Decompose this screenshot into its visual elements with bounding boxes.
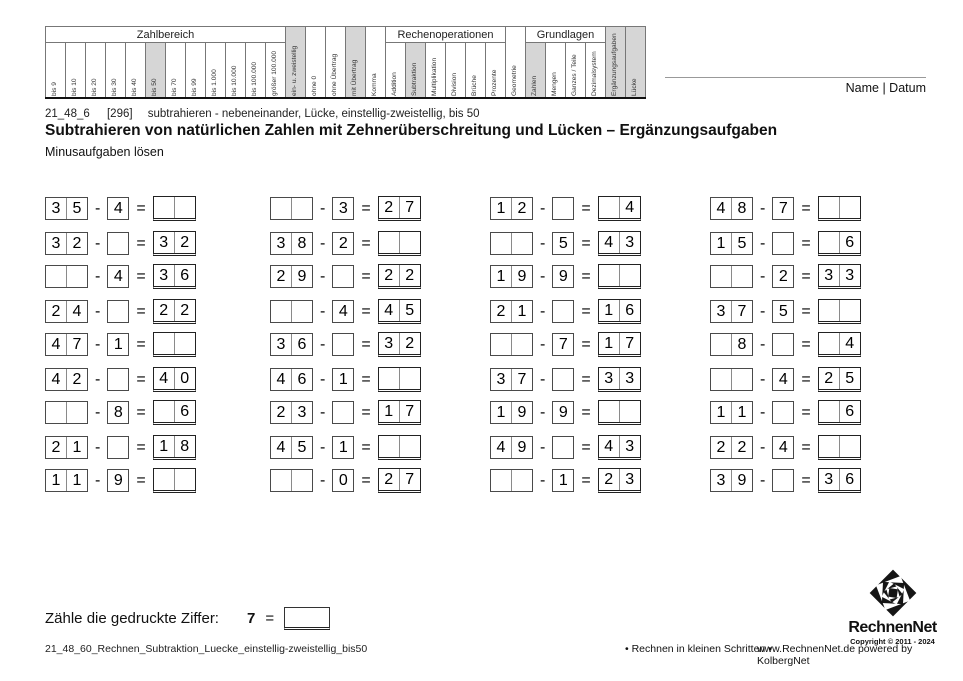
- topic-column-label: Prozente: [492, 43, 499, 97]
- topic-column: bis 30: [106, 43, 126, 99]
- equals-sign: =: [136, 200, 145, 218]
- problem-minuend-box: [45, 401, 88, 424]
- digit-cell: 4: [271, 437, 291, 458]
- problem-minuend-box: 38: [270, 232, 313, 255]
- empty-digit-cell: [291, 301, 312, 322]
- digit-cell: 2: [773, 266, 793, 287]
- problem-minuend-box: 24: [45, 300, 88, 323]
- digit-cell: 9: [511, 266, 532, 287]
- digit-cell: 7: [399, 197, 420, 218]
- problem-minuend-box: 15: [710, 232, 753, 255]
- subtraction-problem: 49-=43: [490, 435, 710, 460]
- equals-sign: =: [581, 371, 590, 389]
- problems-grid: 35-4=-3=2712-=448-7=32-=3238-2=-5=4315-=…: [45, 196, 935, 501]
- empty-digit-cell: [731, 369, 752, 390]
- digit-cell: 0: [333, 470, 353, 491]
- count-digit-value: 7: [247, 610, 255, 627]
- digit-cell: 9: [511, 402, 532, 423]
- problem-minuend-box: [710, 368, 753, 391]
- digit-cell: 4: [271, 369, 291, 390]
- problem-minuend-box: 37: [710, 300, 753, 323]
- digit-cell: 4: [108, 198, 128, 219]
- problem-minuend-box: [270, 300, 313, 323]
- digit-cell: 7: [66, 334, 87, 355]
- problem-row: 24-=22-4=4521-=1637-5=: [45, 299, 935, 324]
- topic-column: bis 1.000: [206, 43, 226, 99]
- problem-result-box: 45: [378, 299, 421, 324]
- empty-digit-cell: [511, 470, 532, 491]
- minus-sign: -: [95, 268, 100, 286]
- empty-digit-cell: [379, 436, 399, 457]
- problem-minuend-box: 32: [45, 232, 88, 255]
- digit-cell: 4: [333, 301, 353, 322]
- subtraction-problem: 11-=6: [710, 400, 861, 425]
- empty-digit-cell: [773, 334, 793, 355]
- problem-result-box: 36: [153, 264, 196, 289]
- digit-cell: 6: [839, 401, 860, 422]
- problem-result-box: 43: [598, 435, 641, 460]
- problem-subtrahend-box: 5: [552, 232, 574, 255]
- digit-cell: 3: [46, 198, 66, 219]
- problem-result-box: 33: [818, 264, 861, 289]
- problem-result-box: 32: [153, 231, 196, 256]
- count-digit-answer-box: [284, 607, 330, 630]
- digit-cell: 4: [711, 198, 731, 219]
- digit-cell: 4: [619, 197, 640, 218]
- topic-column-label: ein- u. zweistellig: [292, 27, 299, 97]
- digit-cell: 1: [553, 470, 573, 491]
- empty-digit-cell: [619, 265, 640, 286]
- equals-sign: =: [136, 404, 145, 422]
- problem-result-box: 18: [153, 435, 196, 460]
- problem-result-box: [153, 468, 196, 493]
- problem-minuend-box: 35: [45, 197, 88, 220]
- empty-digit-cell: [619, 401, 640, 422]
- problem-subtrahend-box: [772, 232, 794, 255]
- problem-minuend-box: [270, 469, 313, 492]
- topic-column: Lücke: [626, 27, 646, 99]
- empty-digit-cell: [839, 197, 860, 218]
- topic-group-header: Grundlagen: [526, 27, 606, 43]
- problem-result-box: 6: [153, 400, 196, 425]
- problem-subtrahend-box: [107, 300, 129, 323]
- digit-cell: 5: [839, 368, 860, 389]
- equals-sign: =: [581, 472, 590, 490]
- topic-column-label: mit Übertrag: [352, 27, 359, 97]
- subtraction-problem: 24-=22: [45, 299, 270, 324]
- topic-column-label: bis 10.000: [232, 43, 239, 97]
- digit-cell: 2: [46, 301, 66, 322]
- subtraction-problem: 23-=17: [270, 400, 490, 425]
- empty-digit-cell: [108, 233, 128, 254]
- empty-digit-cell: [333, 334, 353, 355]
- empty-digit-cell: [154, 469, 174, 490]
- empty-digit-cell: [553, 369, 573, 390]
- empty-digit-cell: [399, 436, 420, 457]
- digit-cell: 5: [553, 233, 573, 254]
- empty-digit-cell: [291, 198, 312, 219]
- count-digit-task: Zähle die gedruckte Ziffer: 7 =: [45, 607, 330, 630]
- equals-sign: =: [801, 235, 810, 253]
- empty-digit-cell: [711, 266, 731, 287]
- digit-cell: 3: [154, 232, 174, 253]
- topic-column-label: Dezimalsystem: [592, 43, 599, 97]
- empty-digit-cell: [333, 266, 353, 287]
- digit-cell: 8: [291, 233, 312, 254]
- topic-column: Geometrie: [506, 27, 526, 99]
- digit-cell: 3: [619, 469, 640, 490]
- subtraction-problem: 29-=22: [270, 264, 490, 289]
- empty-digit-cell: [291, 470, 312, 491]
- empty-digit-cell: [399, 232, 420, 253]
- topic-column: ohne Übertrag: [326, 27, 346, 99]
- subtraction-problem: 19-9=: [490, 400, 710, 425]
- empty-digit-cell: [711, 369, 731, 390]
- subtraction-problem: 46-1=: [270, 367, 490, 392]
- equals-sign: =: [581, 404, 590, 422]
- digit-cell: 3: [711, 470, 731, 491]
- digit-cell: 3: [291, 402, 312, 423]
- equals-sign: =: [361, 439, 370, 457]
- minus-sign: -: [95, 303, 100, 321]
- digit-cell: 3: [619, 368, 640, 389]
- digit-cell: 8: [174, 436, 195, 457]
- logo-copyright: Copyright © 2011 - 2024: [845, 638, 940, 646]
- digit-cell: 2: [379, 197, 399, 218]
- problem-result-box: 40: [153, 367, 196, 392]
- digit-cell: 4: [839, 333, 860, 354]
- problem-row: -4=3629-=2219-9=-2=33: [45, 264, 935, 289]
- topic-column: bis 100.000: [246, 43, 266, 99]
- empty-digit-cell: [271, 301, 291, 322]
- empty-digit-cell: [819, 197, 839, 218]
- digit-cell: 3: [839, 265, 860, 286]
- digit-cell: 1: [491, 266, 511, 287]
- problem-result-box: 25: [818, 367, 861, 392]
- topic-column-label: bis 1.000: [212, 43, 219, 97]
- empty-digit-cell: [174, 333, 195, 354]
- topic-column-label: bis 100.000: [252, 43, 259, 97]
- problem-row: 42-=4046-1=37-=33-4=25: [45, 367, 935, 392]
- problem-subtrahend-box: 9: [552, 265, 574, 288]
- minus-sign: -: [95, 371, 100, 389]
- topic-column-label: Komma: [372, 27, 379, 97]
- problem-subtrahend-box: [107, 232, 129, 255]
- equals-sign: =: [361, 303, 370, 321]
- digit-cell: 2: [66, 369, 87, 390]
- equals-sign: =: [801, 472, 810, 490]
- digit-cell: 3: [271, 334, 291, 355]
- problem-subtrahend-box: [552, 368, 574, 391]
- problem-subtrahend-box: 4: [107, 197, 129, 220]
- empty-digit-cell: [773, 470, 793, 491]
- digit-cell: 1: [599, 300, 619, 321]
- page-title: Subtrahieren von natürlichen Zahlen mit …: [45, 122, 777, 140]
- digit-cell: 2: [711, 437, 731, 458]
- subtraction-problem: 36-=32: [270, 332, 490, 357]
- problem-result-box: 6: [818, 231, 861, 256]
- subtraction-problem: 11-9=: [45, 468, 270, 493]
- subtraction-problem: -1=23: [490, 468, 710, 493]
- problem-subtrahend-box: [552, 300, 574, 323]
- topic-column-label: Multiplikation: [432, 43, 439, 97]
- digit-cell: 5: [66, 198, 87, 219]
- digit-cell: 1: [599, 333, 619, 354]
- subtraction-problem: 48-7=: [710, 196, 861, 221]
- empty-digit-cell: [773, 402, 793, 423]
- empty-digit-cell: [553, 198, 573, 219]
- equals-sign: =: [361, 200, 370, 218]
- topic-column: bis 99: [186, 43, 206, 99]
- problem-result-box: [378, 435, 421, 460]
- problem-result-box: 16: [598, 299, 641, 324]
- problem-result-box: [818, 196, 861, 221]
- digit-cell: 4: [66, 301, 87, 322]
- problem-row: 35-4=-3=2712-=448-7=: [45, 196, 935, 221]
- digit-cell: 1: [379, 401, 399, 422]
- digit-cell: 3: [711, 301, 731, 322]
- digit-cell: 4: [154, 368, 174, 389]
- topic-column: bis 10: [66, 43, 86, 99]
- topic-column-label: Ergänzungsaufgaben: [612, 27, 619, 97]
- problem-result-box: 17: [598, 332, 641, 357]
- digit-cell: 2: [379, 469, 399, 490]
- topic-column: bis 10.000: [226, 43, 246, 99]
- equals-sign: =: [361, 404, 370, 422]
- minus-sign: -: [95, 200, 100, 218]
- problem-result-box: [378, 367, 421, 392]
- topic-column: Multiplikation: [426, 43, 446, 99]
- minus-sign: -: [95, 472, 100, 490]
- digit-cell: 6: [174, 401, 195, 422]
- topic-column: ein- u. zweistellig: [286, 27, 306, 99]
- digit-cell: 9: [511, 437, 532, 458]
- digit-cell: 2: [333, 233, 353, 254]
- digit-cell: 6: [174, 265, 195, 286]
- topic-column-label: bis 10: [72, 43, 79, 97]
- problem-minuend-box: 49: [490, 436, 533, 459]
- subtraction-problem: -7=17: [490, 332, 710, 357]
- empty-digit-cell: [108, 369, 128, 390]
- equals-sign: =: [581, 235, 590, 253]
- minus-sign: -: [540, 303, 545, 321]
- digit-cell: 6: [291, 334, 312, 355]
- problem-subtrahend-box: 3: [332, 197, 354, 220]
- problem-minuend-box: 46: [270, 368, 313, 391]
- equals-sign: =: [801, 200, 810, 218]
- footer-filename: 21_48_60_Rechnen_Subtraktion_Luecke_eins…: [45, 643, 367, 655]
- equals-sign: =: [361, 336, 370, 354]
- digit-cell: 5: [291, 437, 312, 458]
- problem-subtrahend-box: [332, 265, 354, 288]
- problem-result-box: 6: [818, 400, 861, 425]
- equals-sign: =: [361, 235, 370, 253]
- topic-column-label: bis 30: [112, 43, 119, 97]
- digit-cell: 9: [553, 402, 573, 423]
- problem-subtrahend-box: 0: [332, 469, 354, 492]
- empty-digit-cell: [333, 402, 353, 423]
- minus-sign: -: [540, 439, 545, 457]
- minus-sign: -: [760, 371, 765, 389]
- digit-cell: 2: [511, 198, 532, 219]
- digit-cell: 3: [599, 368, 619, 389]
- empty-digit-cell: [271, 470, 291, 491]
- digit-cell: 2: [819, 368, 839, 389]
- empty-digit-cell: [491, 470, 511, 491]
- minus-sign: -: [760, 268, 765, 286]
- problem-minuend-box: 29: [270, 265, 313, 288]
- digit-cell: 2: [271, 402, 291, 423]
- problem-minuend-box: 37: [490, 368, 533, 391]
- minus-sign: -: [760, 439, 765, 457]
- problem-minuend-box: [710, 265, 753, 288]
- digit-cell: 1: [731, 402, 752, 423]
- digit-cell: 8: [731, 198, 752, 219]
- minus-sign: -: [540, 268, 545, 286]
- problem-result-box: [153, 332, 196, 357]
- equals-sign: =: [581, 200, 590, 218]
- problem-subtrahend-box: [772, 333, 794, 356]
- problem-result-box: 27: [378, 196, 421, 221]
- subtraction-problem: -5=43: [490, 231, 710, 256]
- problem-result-box: 32: [378, 332, 421, 357]
- digit-cell: 3: [46, 233, 66, 254]
- empty-digit-cell: [731, 266, 752, 287]
- problem-row: 21-=1845-1=49-=4322-4=: [45, 435, 935, 460]
- worksheet-description: subtrahieren - nebeneinander, Lücke, ein…: [148, 108, 480, 120]
- empty-digit-cell: [599, 401, 619, 422]
- problem-subtrahend-box: 4: [772, 368, 794, 391]
- topic-matrix-table: Zahlbereichein- u. zweistelligohne 0ohne…: [45, 26, 646, 99]
- equals-sign: =: [136, 439, 145, 457]
- digit-cell: 9: [553, 266, 573, 287]
- topic-column: Subtraktion: [406, 43, 426, 99]
- empty-digit-cell: [174, 197, 195, 218]
- empty-digit-cell: [46, 402, 66, 423]
- problem-result-box: 27: [378, 468, 421, 493]
- equals-sign: =: [581, 439, 590, 457]
- subtraction-problem: 45-1=: [270, 435, 490, 460]
- digit-cell: 1: [46, 470, 66, 491]
- problem-minuend-box: 12: [490, 197, 533, 220]
- digit-cell: 6: [291, 369, 312, 390]
- digit-cell: 2: [271, 266, 291, 287]
- digit-cell: 6: [619, 300, 640, 321]
- digit-cell: 2: [46, 437, 66, 458]
- subtraction-problem: 22-4=: [710, 435, 861, 460]
- empty-digit-cell: [108, 301, 128, 322]
- footer-slogan: • Rechnen in kleinen Schritten •: [625, 643, 772, 655]
- minus-sign: -: [760, 303, 765, 321]
- empty-digit-cell: [553, 301, 573, 322]
- digit-cell: 4: [599, 436, 619, 457]
- topic-column: Addition: [386, 43, 406, 99]
- problem-minuend-box: 11: [45, 469, 88, 492]
- topic-column: Zahlen: [526, 43, 546, 99]
- problem-result-box: [598, 264, 641, 289]
- digit-cell: 2: [66, 233, 87, 254]
- subtraction-problem: 8-=4: [710, 332, 861, 357]
- topic-column-label: größer 100.000: [272, 43, 279, 97]
- worksheet-page: Zahlbereichein- u. zweistelligohne 0ohne…: [0, 0, 963, 681]
- empty-digit-cell: [491, 233, 511, 254]
- minus-sign: -: [540, 404, 545, 422]
- problem-subtrahend-box: [107, 436, 129, 459]
- digit-cell: 7: [553, 334, 573, 355]
- empty-digit-cell: [839, 436, 860, 457]
- digit-cell: 3: [271, 233, 291, 254]
- digit-cell: 1: [108, 334, 128, 355]
- problem-result-box: [818, 435, 861, 460]
- empty-digit-cell: [66, 402, 87, 423]
- digit-cell: 5: [731, 233, 752, 254]
- problem-subtrahend-box: 1: [552, 469, 574, 492]
- problem-result-box: 43: [598, 231, 641, 256]
- empty-digit-cell: [819, 300, 839, 321]
- page-subtitle: Minusaufgaben lösen: [45, 145, 164, 159]
- problem-result-box: 23: [598, 468, 641, 493]
- digit-cell: 8: [731, 334, 752, 355]
- name-date-label: Name | Datum: [846, 81, 926, 95]
- digit-cell: 2: [599, 469, 619, 490]
- topic-column-label: Division: [452, 43, 459, 97]
- footer-credit: www.RechnenNet.de powered by KolbergNet: [757, 643, 963, 667]
- count-digit-equals: =: [265, 610, 274, 627]
- problem-subtrahend-box: 4: [332, 300, 354, 323]
- empty-digit-cell: [599, 265, 619, 286]
- equals-sign: =: [581, 336, 590, 354]
- problem-result-box: 33: [598, 367, 641, 392]
- digit-cell: 1: [711, 233, 731, 254]
- empty-digit-cell: [773, 233, 793, 254]
- topic-column-label: bis 50: [152, 43, 159, 97]
- minus-sign: -: [95, 336, 100, 354]
- empty-digit-cell: [819, 436, 839, 457]
- topic-column: bis 20: [86, 43, 106, 99]
- equals-sign: =: [136, 268, 145, 286]
- topic-column-label: Zahlen: [532, 43, 539, 97]
- minus-sign: -: [320, 235, 325, 253]
- subtraction-problem: 37-5=: [710, 299, 861, 324]
- topic-column-label: Brüche: [472, 43, 479, 97]
- equals-sign: =: [801, 336, 810, 354]
- empty-digit-cell: [46, 266, 66, 287]
- subtraction-problem: -4=25: [710, 367, 861, 392]
- equals-sign: =: [136, 472, 145, 490]
- topic-column: Ergänzungsaufgaben: [606, 27, 626, 99]
- empty-digit-cell: [174, 469, 195, 490]
- minus-sign: -: [540, 472, 545, 490]
- problem-subtrahend-box: [107, 368, 129, 391]
- problem-minuend-box: [270, 197, 313, 220]
- problem-result-box: [378, 231, 421, 256]
- problem-row: -8=623-=1719-9=11-=6: [45, 400, 935, 425]
- topic-group-header: Zahlbereich: [46, 27, 286, 43]
- problem-result-box: 36: [818, 468, 861, 493]
- digit-cell: 1: [333, 437, 353, 458]
- problem-subtrahend-box: 2: [772, 265, 794, 288]
- problem-minuend-box: 23: [270, 401, 313, 424]
- digit-cell: 1: [491, 402, 511, 423]
- equals-sign: =: [361, 371, 370, 389]
- digit-cell: 7: [773, 198, 793, 219]
- digit-cell: 6: [839, 232, 860, 253]
- digit-cell: 6: [839, 469, 860, 490]
- topic-column-label: Ganzes / Teile: [572, 43, 579, 97]
- problem-minuend-box: 36: [270, 333, 313, 356]
- topic-column-label: Addition: [392, 43, 399, 97]
- problem-result-box: [818, 299, 861, 324]
